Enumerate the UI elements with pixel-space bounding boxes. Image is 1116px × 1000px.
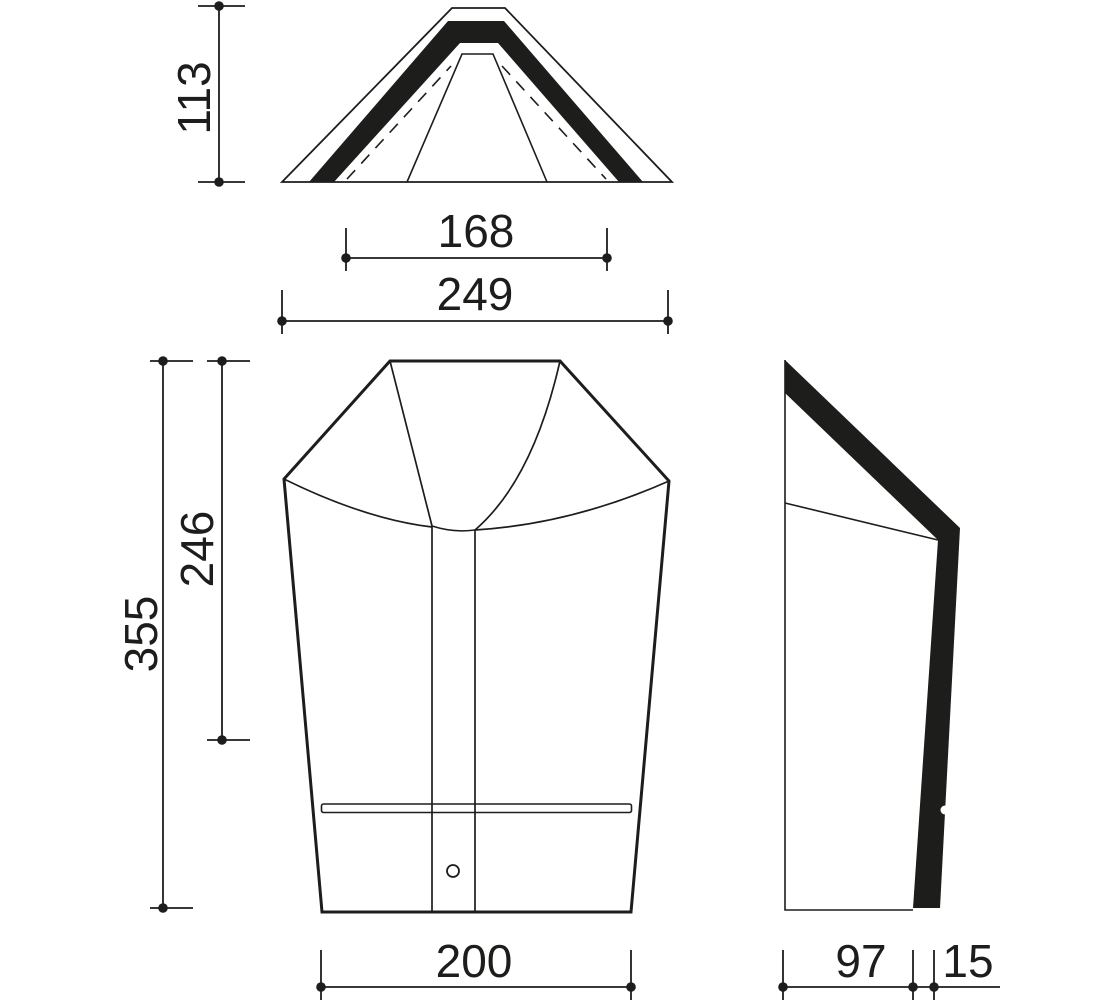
front-view-body bbox=[284, 361, 669, 912]
dimension-200-dot-right bbox=[626, 982, 636, 992]
side-view-section-band bbox=[785, 360, 960, 908]
dimension-249-dot-right bbox=[663, 316, 673, 326]
dimension-97-dot-left bbox=[778, 982, 788, 992]
front-view-crease-right bbox=[475, 361, 560, 530]
front-view bbox=[284, 361, 669, 912]
front-view-stop-rib bbox=[322, 804, 632, 813]
dimension-249: 249 bbox=[277, 268, 673, 334]
front-view-shoulder-line-right bbox=[475, 481, 669, 530]
dimension-355-dot-bottom bbox=[158, 903, 168, 913]
dimension-168-dot-right bbox=[602, 253, 612, 263]
dimension-355-dot-top bbox=[158, 356, 168, 366]
dimension-97-dot-right bbox=[908, 982, 918, 992]
dimension-113-dot-top bbox=[214, 1, 224, 11]
dimension-168-label: 168 bbox=[438, 205, 515, 257]
dimension-168: 168 bbox=[341, 205, 612, 271]
top-view-section-band bbox=[309, 21, 643, 182]
dimension-15-dot bbox=[929, 982, 939, 992]
dimension-249-label: 249 bbox=[437, 268, 514, 320]
dimension-246-dot-top bbox=[217, 356, 227, 366]
dimension-200: 200 bbox=[316, 935, 636, 1000]
dimension-246-dot-bottom bbox=[217, 735, 227, 745]
drawing-sheet: 113 168 249 355 bbox=[0, 0, 1116, 1000]
dimension-168-dot-left bbox=[341, 253, 351, 263]
dimension-15-label: 15 bbox=[942, 935, 993, 987]
dimension-355: 355 bbox=[115, 356, 193, 913]
dimension-113-dot-bottom bbox=[214, 177, 224, 187]
dimension-246-label: 246 bbox=[171, 511, 223, 588]
technical-drawing-canvas: 113 168 249 355 bbox=[0, 0, 1116, 1000]
dimension-200-label: 200 bbox=[436, 935, 513, 987]
front-view-shoulder-line-left bbox=[284, 479, 432, 527]
front-view-saddle-line bbox=[432, 526, 475, 531]
top-view bbox=[282, 8, 672, 182]
dimension-113: 113 bbox=[168, 1, 245, 187]
dimension-200-dot-left bbox=[316, 982, 326, 992]
dimension-355-label: 355 bbox=[115, 596, 167, 673]
dimension-97-label: 97 bbox=[835, 935, 886, 987]
front-view-strip-highlight bbox=[433, 531, 474, 910]
dimension-249-dot-left bbox=[277, 316, 287, 326]
dimension-97-15: 97 15 bbox=[778, 935, 1000, 1000]
side-view bbox=[785, 360, 960, 910]
dimension-113-label: 113 bbox=[168, 61, 220, 134]
front-view-crease-left bbox=[390, 361, 432, 526]
dimension-246: 246 bbox=[171, 356, 250, 745]
side-view-nail-hole-notch bbox=[941, 806, 950, 815]
